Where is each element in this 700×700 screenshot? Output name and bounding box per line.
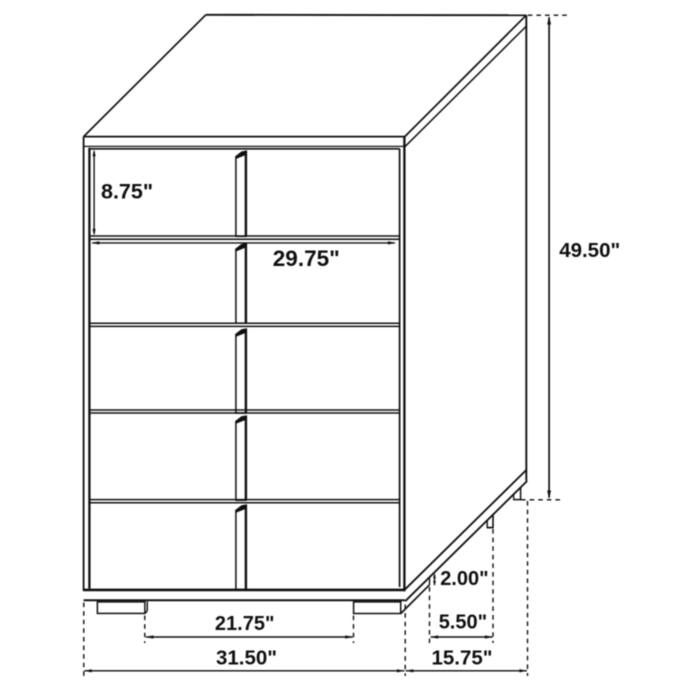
svg-text:2.00": 2.00": [440, 568, 488, 590]
svg-text:29.75": 29.75": [273, 246, 340, 271]
svg-text:31.50": 31.50": [216, 646, 277, 669]
svg-text:8.75": 8.75": [101, 179, 153, 203]
svg-text:15.75": 15.75": [432, 646, 493, 669]
svg-text:5.50": 5.50": [439, 612, 487, 634]
svg-text:21.75": 21.75": [215, 613, 275, 635]
svg-text:49.50": 49.50": [559, 239, 620, 262]
